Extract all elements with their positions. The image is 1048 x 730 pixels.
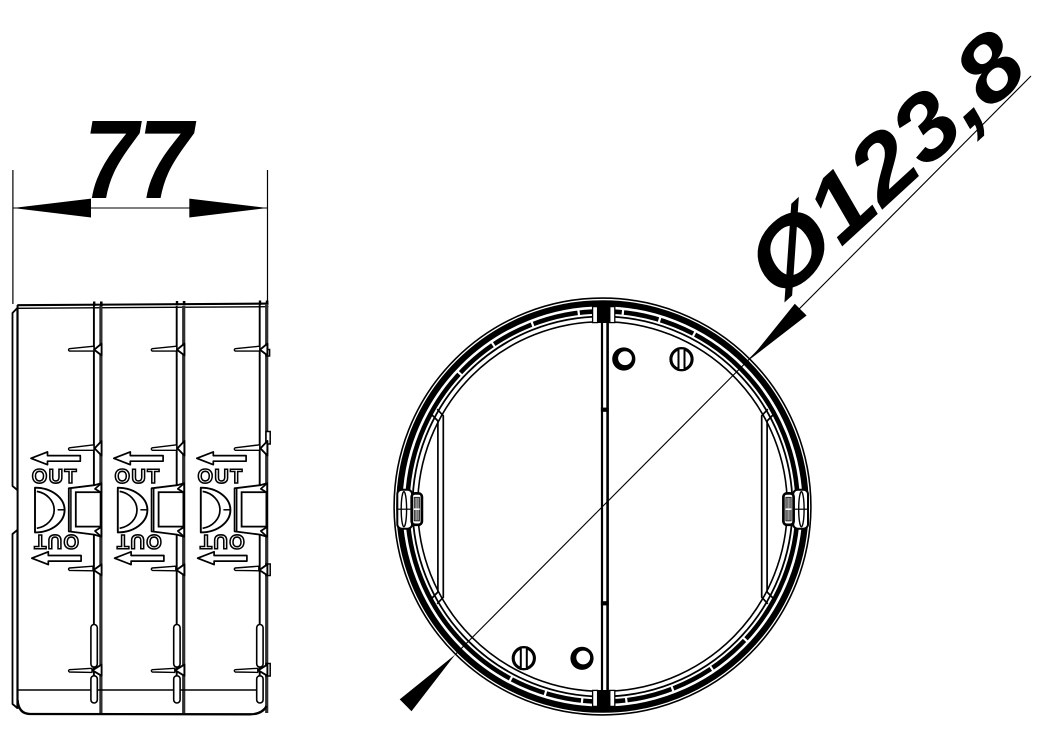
svg-text:77: 77 xyxy=(84,97,197,222)
svg-text:Ø123,8: Ø123,8 xyxy=(726,11,1046,317)
